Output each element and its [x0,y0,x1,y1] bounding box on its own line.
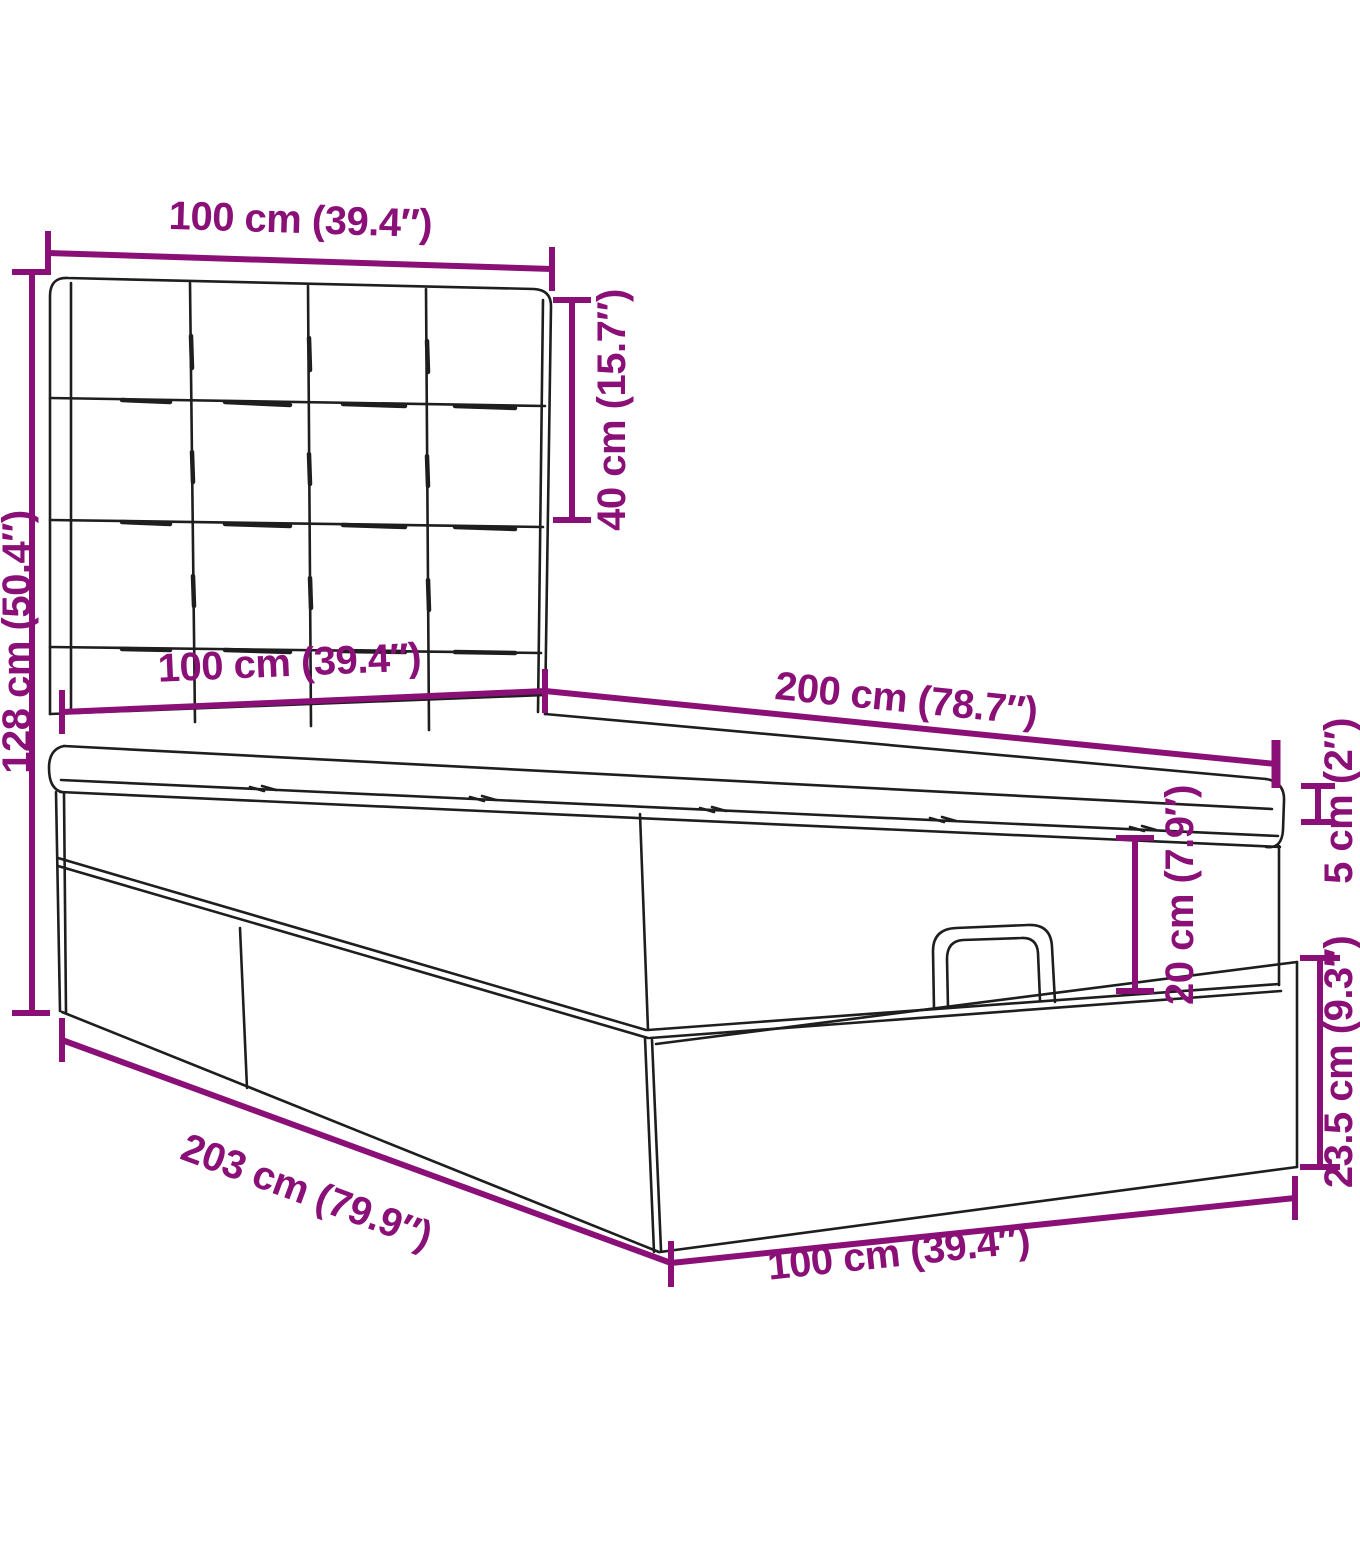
dimension-base-height: 23.5 cm (9.3″) [1300,936,1360,1188]
tuft-marks-horizontal [122,400,515,653]
dimension-base-length: 203 cm (79.9″) [62,1018,671,1287]
dim-label-topper-height: 5 cm (2″) [1317,718,1360,884]
dim-label-box-height: 20 cm (7.9″) [1158,785,1202,1005]
bed-diagram-canvas: 100 cm (39.4″) 40 cm (15.7″) 128 cm (50.… [0,0,1360,1555]
dimension-topper-height: 5 cm (2″) [1301,718,1360,884]
dimension-total-height: 128 cm (50.4″) [0,272,50,1013]
dim-label-mattress-width: 100 cm (39.4″) [157,635,422,690]
dimension-headboard-width: 100 cm (39.4″) [48,194,552,291]
dimension-box-height: 20 cm (7.9″) [1116,785,1202,1005]
dimension-base-width: 100 cm (39.4″) [671,1176,1295,1289]
dimension-diagram: 100 cm (39.4″) 40 cm (15.7″) 128 cm (50.… [0,0,1360,1555]
dim-label-headboard-height: 40 cm (15.7″) [590,289,634,531]
dim-label-base-width: 100 cm (39.4″) [765,1217,1032,1288]
storage-base [62,928,1297,1252]
dim-label-base-height: 23.5 cm (9.3″) [1317,936,1360,1188]
dim-label-base-length: 203 cm (79.9″) [175,1125,437,1258]
dim-label-total-height: 128 cm (50.4″) [0,510,39,773]
dim-label-headboard-width: 100 cm (39.4″) [168,194,433,246]
dim-label-bed-length: 200 cm (78.7″) [773,664,1040,734]
mattress-topper [49,714,1284,847]
dimension-headboard-height: 40 cm (15.7″) [553,289,634,531]
